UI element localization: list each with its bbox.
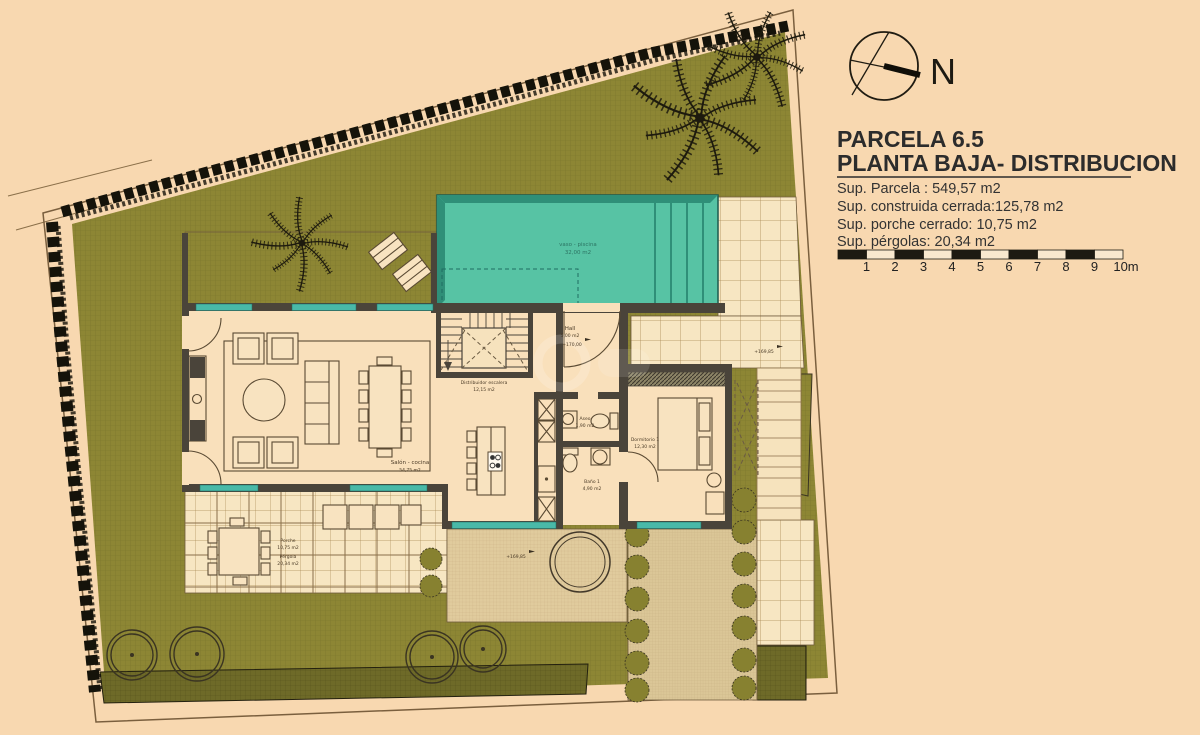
- scale-tick: 9: [1091, 259, 1098, 274]
- scale-tick: 3: [920, 259, 927, 274]
- scale-tick: 1: [863, 259, 870, 274]
- pergola-area: 20,34 m2: [277, 561, 299, 567]
- pool-label: vaso - piscina: [559, 242, 597, 248]
- area-line-porche: Sup. porche cerrado: 10,75 m2: [837, 217, 1037, 233]
- floor-plan-page: vaso - piscina 32,00 m2: [0, 0, 1200, 735]
- porche-area: 10,75 m2: [277, 545, 299, 551]
- path-level: +169,85: [506, 554, 526, 560]
- dormitorio-label: Dormitorio 1: [631, 437, 659, 443]
- scale-tick: 6: [1005, 259, 1012, 274]
- aseo-label: Aseo: [580, 416, 591, 422]
- scale-tick: 8: [1062, 259, 1069, 274]
- distribuidor-label: Distribuidor escalera: [461, 380, 508, 386]
- salon-area: 54,75 m2: [399, 468, 421, 474]
- pergola-label: Pérgola: [280, 553, 297, 560]
- floor-plan-canvas: vaso - piscina 32,00 m2: [0, 0, 1200, 735]
- scale-tick: 7: [1034, 259, 1041, 274]
- aseo-area: 1,90 m2: [576, 423, 595, 429]
- parcel-title: PARCELA 6.5: [837, 126, 984, 152]
- porche-label: Porche: [280, 538, 295, 544]
- hall-label: Hall: [565, 326, 576, 332]
- distribuidor-area: 12,15 m2: [473, 387, 495, 393]
- bano-label: Baño 1: [584, 479, 600, 485]
- pool-area: 32,00 m2: [565, 250, 591, 256]
- bano-area: 4,90 m2: [583, 486, 602, 492]
- hall-area: 5,00 m2: [561, 333, 580, 339]
- north-label: N: [930, 51, 956, 92]
- area-line-construida: Sup. construida cerrada:125,78 m2: [837, 199, 1064, 215]
- salon-label: Salón - cocina: [391, 459, 430, 466]
- terrace-level: +169,85: [754, 349, 774, 355]
- scale-tick: 2: [891, 259, 898, 274]
- scale-tick: 5: [977, 259, 984, 274]
- scale-tick: 10m: [1113, 259, 1138, 274]
- pool: vaso - piscina 32,00 m2: [437, 195, 718, 308]
- hall-level: +170,00: [562, 342, 582, 348]
- dormitorio-area: 12,30 m2: [634, 444, 656, 450]
- area-line-parcela: Sup. Parcela : 549,57 m2: [837, 181, 1001, 197]
- scale-tick: 4: [948, 259, 955, 274]
- area-line-pergolas: Sup. pérgolas: 20,34 m2: [837, 234, 995, 250]
- plan-title: PLANTA BAJA- DISTRIBUCION: [837, 150, 1177, 176]
